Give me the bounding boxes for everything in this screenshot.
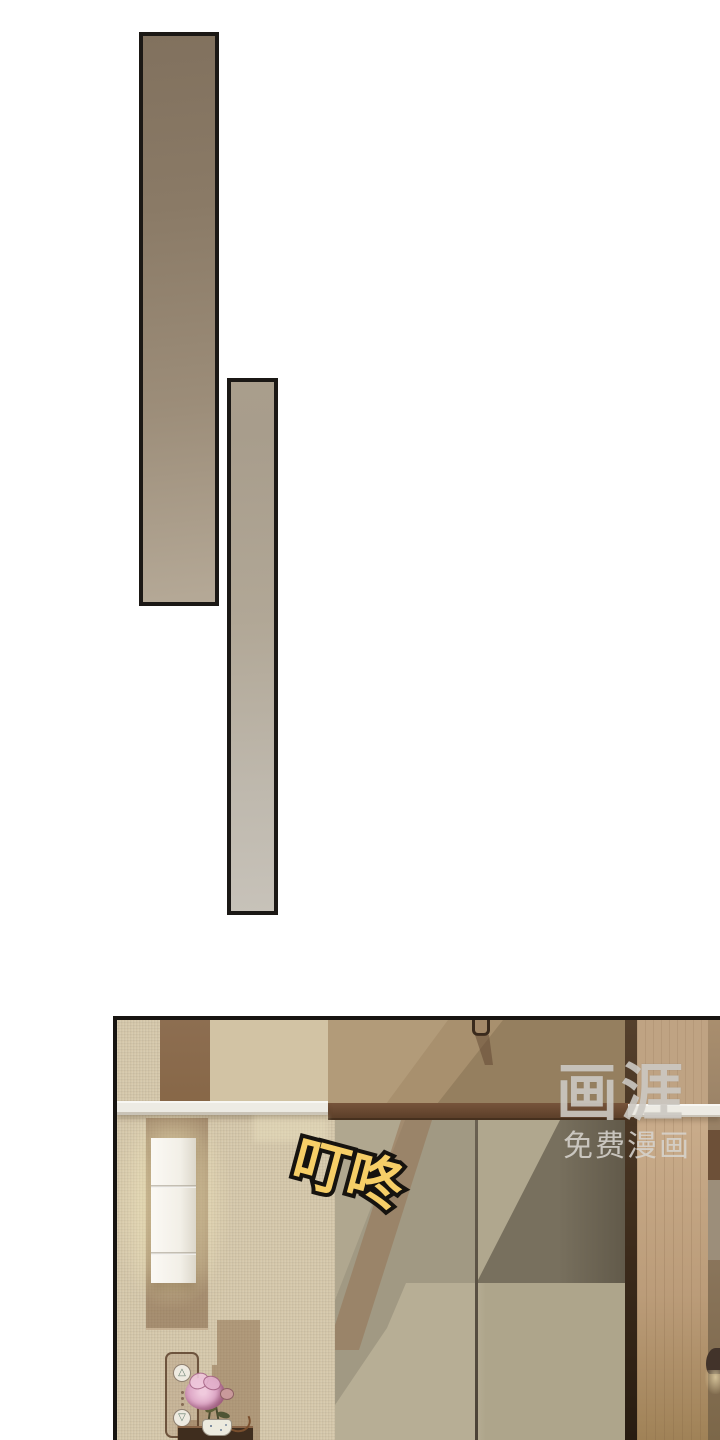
panel-dot [181,1403,184,1406]
far-right-dark-segment [708,1130,720,1180]
elevator-up-button: △ [173,1364,191,1382]
door-middle-seam [475,1120,478,1440]
comic-panel-strip-narrow [227,378,278,915]
comic-panel-strip-tall [139,32,219,606]
wall-rail-left [117,1101,328,1115]
lamp-seam [151,1185,196,1188]
lotus-bud [220,1388,234,1400]
flower-vase [202,1419,232,1436]
wall-stripe-beige [210,1020,328,1106]
door-closer-handle [472,1018,490,1036]
elevator-down-button: ▽ [173,1409,191,1427]
right-sconce-glow [705,1370,720,1394]
wall-stripe-brown [160,1020,210,1106]
watermark-tagline: 免费漫画 [563,1132,691,1162]
right-wood-grain [637,1117,708,1440]
panel-dot [181,1397,184,1400]
panel-dot [181,1391,184,1394]
lamp-seam [151,1252,196,1255]
wall-sconce-lamp [151,1138,196,1283]
far-right-gray-segment [708,1180,720,1260]
watermark-logo: 画涯 [556,1062,686,1124]
